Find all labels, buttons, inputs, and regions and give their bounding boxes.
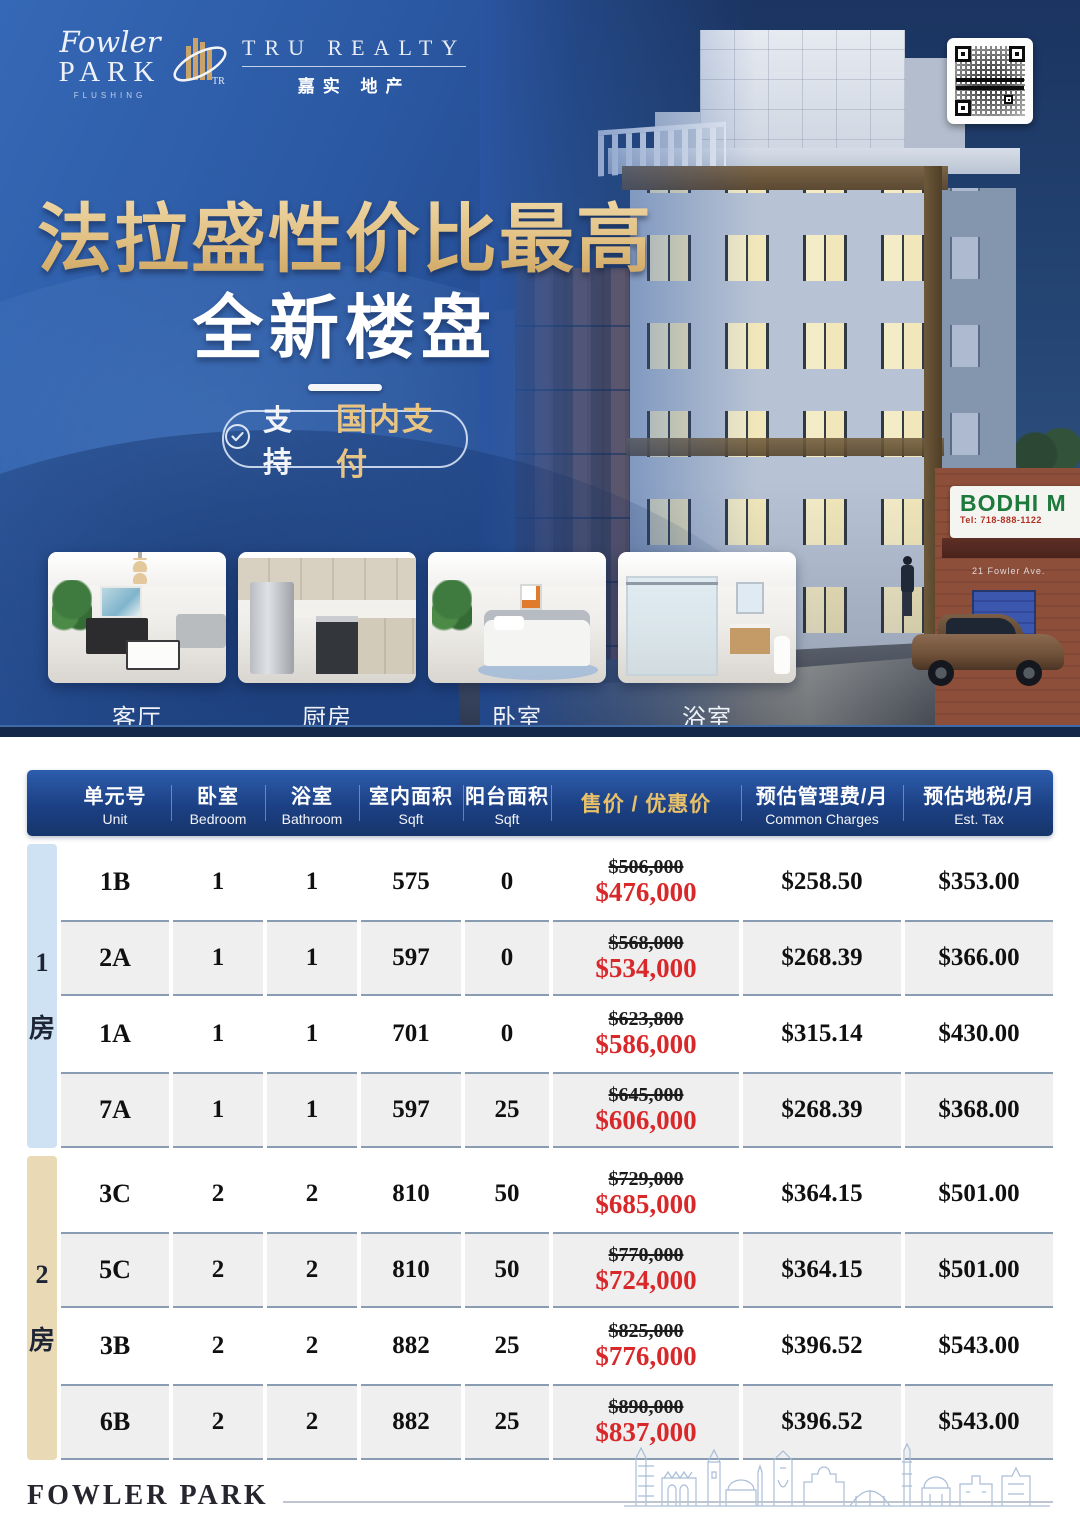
table-row: 3C 2 2 810 50 $729,000 $685,000 $364.15 …: [61, 1156, 1053, 1232]
table-row: 1B 1 1 575 0 $506,000 $476,000 $258.50 $…: [61, 844, 1053, 920]
tru-realty-name: TRU REALTY: [242, 35, 466, 67]
unit-cell: 3B: [61, 1308, 169, 1384]
price-cell: $623,800 $586,000: [553, 996, 739, 1072]
header-balcony-sqft: 阳台面积Sqft: [465, 770, 549, 836]
hero-bottom-strip: [0, 725, 1080, 737]
price-cell: $825,000 $776,000: [553, 1308, 739, 1384]
bed-cell: 1: [173, 920, 263, 996]
bath-cell: 2: [267, 1156, 357, 1232]
photo-kitchen: 厨房: [238, 552, 416, 733]
price-cell: $506,000 $476,000: [553, 844, 739, 920]
original-price: $770,000: [609, 1244, 684, 1266]
pricing-table: 单元号Unit 卧室Bedroom 浴室Bathroom 室内面积Sqft 阳台…: [27, 770, 1053, 1468]
header-price: 售价 / 优惠价: [553, 770, 739, 836]
fowler-logo-park: PARK: [50, 57, 170, 87]
bath-cell: 1: [267, 1072, 357, 1148]
tax-cell: $368.00: [905, 1072, 1053, 1148]
sqft-cell: 597: [361, 1072, 461, 1148]
original-price: $729,000: [609, 1168, 684, 1190]
unit-cell: 2A: [61, 920, 169, 996]
bath-cell: 2: [267, 1384, 357, 1460]
fowler-logo-sub: FLUSHING: [50, 91, 170, 100]
header-est-tax: 预估地税/月Est. Tax: [905, 770, 1053, 836]
table-row: 7A 1 1 597 25 $645,000 $606,000 $268.39 …: [61, 1072, 1053, 1148]
price-cell: $645,000 $606,000: [553, 1072, 739, 1148]
bed-cell: 1: [173, 1072, 263, 1148]
bath-cell: 1: [267, 844, 357, 920]
group-2-bedroom: 2房 3C 2 2 810 50 $729,000 $685,000 $364.…: [27, 1156, 1053, 1460]
price-cell: $770,000 $724,000: [553, 1232, 739, 1308]
fowler-logo-script: Fowler: [50, 28, 170, 57]
common-charges-cell: $364.15: [743, 1232, 901, 1308]
table-row: 3B 2 2 882 25 $825,000 $776,000 $396.52 …: [61, 1308, 1053, 1384]
tax-cell: $366.00: [905, 920, 1053, 996]
bed-cell: 2: [173, 1156, 263, 1232]
bath-cell: 2: [267, 1308, 357, 1384]
bed-cell: 2: [173, 1384, 263, 1460]
common-charges-cell: $396.52: [743, 1308, 901, 1384]
sale-price: $724,000: [595, 1266, 696, 1296]
fowler-park-logo: Fowler PARK FLUSHING: [50, 28, 170, 100]
table-row: 2A 1 1 597 0 $568,000 $534,000 $268.39 $…: [61, 920, 1053, 996]
balcony-cell: 50: [465, 1156, 549, 1232]
badge-prefix: 支持: [263, 397, 324, 481]
sqft-cell: 575: [361, 844, 461, 920]
header-spacer: [27, 770, 57, 836]
common-charges-cell: $268.39: [743, 920, 901, 996]
bed-cell: 2: [173, 1308, 263, 1384]
badge-highlight: 国内支付: [336, 394, 466, 484]
headline-divider: [308, 384, 382, 391]
original-price: $825,000: [609, 1320, 684, 1342]
header-bedroom: 卧室Bedroom: [173, 770, 263, 836]
footer: FOWLER PARK: [27, 1480, 1053, 1512]
table-row: 5C 2 2 810 50 $770,000 $724,000 $364.15 …: [61, 1232, 1053, 1308]
bed-cell: 1: [173, 996, 263, 1072]
original-price: $506,000: [609, 856, 684, 878]
header-bathroom: 浴室Bathroom: [267, 770, 357, 836]
photo-gallery: 客厅 厨房 卧室 浴室: [48, 552, 796, 733]
header-common-charges: 预估管理费/月Common Charges: [743, 770, 901, 836]
sqft-cell: 597: [361, 920, 461, 996]
common-charges-cell: $364.15: [743, 1156, 901, 1232]
qr-code: [947, 38, 1033, 124]
unit-cell: 7A: [61, 1072, 169, 1148]
sale-price: $586,000: [595, 1030, 696, 1060]
group-label-2br: 2房: [27, 1156, 57, 1460]
bed-cell: 1: [173, 844, 263, 920]
headline-line1: 法拉盛性价比最高: [0, 178, 690, 287]
check-circle-icon: [224, 423, 251, 455]
sale-price: $534,000: [595, 954, 696, 984]
balcony-cell: 25: [465, 1384, 549, 1460]
tax-cell: $501.00: [905, 1232, 1053, 1308]
bath-cell: 1: [267, 920, 357, 996]
sqft-cell: 882: [361, 1308, 461, 1384]
payment-badge: 支持国内支付: [222, 410, 468, 468]
tru-realty-cn: 嘉实 地产: [298, 72, 411, 97]
common-charges-cell: $315.14: [743, 996, 901, 1072]
photo-bathroom: 浴室: [618, 552, 796, 733]
header-unit: 单元号Unit: [61, 770, 169, 836]
balcony-cell: 0: [465, 920, 549, 996]
headline-line2: 全新楼盘: [0, 272, 690, 373]
original-price: $623,800: [609, 1008, 684, 1030]
sqft-cell: 810: [361, 1232, 461, 1308]
common-charges-cell: $268.39: [743, 1072, 901, 1148]
tru-building-icon: TR: [168, 34, 232, 97]
footer-brand: FOWLER PARK: [27, 1480, 269, 1512]
table-row: 1A 1 1 701 0 $623,800 $586,000 $315.14 $…: [61, 996, 1053, 1072]
original-price: $645,000: [609, 1084, 684, 1106]
tax-cell: $430.00: [905, 996, 1053, 1072]
balcony-cell: 25: [465, 1308, 549, 1384]
sale-price: $776,000: [595, 1342, 696, 1372]
sqft-cell: 701: [361, 996, 461, 1072]
flyer-page: BODHI M Tel: 718-888-1122 21 Fowler Ave.…: [0, 0, 1080, 1528]
unit-cell: 5C: [61, 1232, 169, 1308]
unit-cell: 1B: [61, 844, 169, 920]
table-header: 单元号Unit 卧室Bedroom 浴室Bathroom 室内面积Sqft 阳台…: [27, 770, 1053, 836]
tax-cell: $543.00: [905, 1308, 1053, 1384]
balcony-cell: 50: [465, 1232, 549, 1308]
balcony-cell: 25: [465, 1072, 549, 1148]
photo-living-room: 客厅: [48, 552, 226, 733]
original-price: $568,000: [609, 932, 684, 954]
sale-price: $476,000: [595, 878, 696, 908]
group-label-1br: 1房: [27, 844, 57, 1148]
unit-cell: 3C: [61, 1156, 169, 1232]
header-indoor-sqft: 室内面积Sqft: [361, 770, 461, 836]
price-cell: $568,000 $534,000: [553, 920, 739, 996]
sale-price: $685,000: [595, 1190, 696, 1220]
original-price: $890,000: [609, 1396, 684, 1418]
tru-realty-logo: TR TRU REALTY 嘉实 地产: [168, 34, 466, 97]
footer-line: [283, 1501, 1053, 1503]
common-charges-cell: $258.50: [743, 844, 901, 920]
photo-bedroom: 卧室: [428, 552, 606, 733]
balcony-cell: 0: [465, 844, 549, 920]
balcony-cell: 0: [465, 996, 549, 1072]
group-1-bedroom: 1房 1B 1 1 575 0 $506,000 $476,000 $258.5…: [27, 844, 1053, 1148]
sale-price: $606,000: [595, 1106, 696, 1136]
bath-cell: 1: [267, 996, 357, 1072]
tax-cell: $353.00: [905, 844, 1053, 920]
svg-text:TR: TR: [212, 76, 225, 87]
bath-cell: 2: [267, 1232, 357, 1308]
table-body: 1房 1B 1 1 575 0 $506,000 $476,000 $258.5…: [27, 844, 1053, 1460]
sqft-cell: 882: [361, 1384, 461, 1460]
price-cell: $729,000 $685,000: [553, 1156, 739, 1232]
sqft-cell: 810: [361, 1156, 461, 1232]
hero-section: BODHI M Tel: 718-888-1122 21 Fowler Ave.…: [0, 0, 1080, 737]
unit-cell: 1A: [61, 996, 169, 1072]
bed-cell: 2: [173, 1232, 263, 1308]
unit-cell: 6B: [61, 1384, 169, 1460]
tax-cell: $501.00: [905, 1156, 1053, 1232]
